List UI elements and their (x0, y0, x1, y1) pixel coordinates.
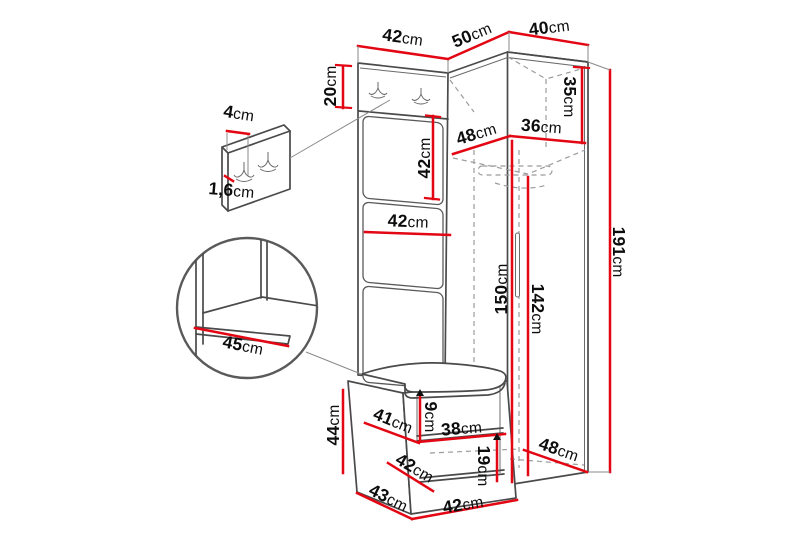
dim-top-width-left: 42cm (381, 24, 424, 50)
dim-top-shelf-height: 35cm (560, 77, 580, 118)
door-handle (516, 233, 520, 297)
dim-hook-panel-height: 20cm (320, 66, 340, 107)
bench-seat-cushion (362, 363, 506, 392)
seat-zoom-detail (177, 238, 361, 378)
dim-top-width-corner: 50cm (449, 17, 494, 51)
zoom-circle (177, 238, 317, 378)
dim-interior-height: 150cm (491, 264, 511, 315)
dim-hanging-height: 142cm (528, 284, 548, 335)
dim-seat-gap-height: 9cm (421, 402, 441, 433)
dimension-diagram-page: 42cm 50cm 40cm 20cm 42cm 42cm 48cm 36cm … (0, 0, 800, 533)
dim-bench-height: 44cm (323, 405, 343, 446)
furniture-diagram: 42cm 50cm 40cm 20cm 42cm 42cm 48cm 36cm … (0, 0, 800, 533)
dim-upper-panel-height: 42cm (414, 138, 434, 179)
zoom-leader-line (306, 352, 361, 374)
dim-total-height: 191cm (609, 227, 629, 278)
dim-shelf-depth-left: 48cm (454, 118, 499, 149)
dim-hook-board-width: 4cm (222, 101, 256, 126)
dim-top-width-right: 40cm (528, 15, 571, 40)
dim-lower-gap-height: 19cm (474, 446, 494, 487)
